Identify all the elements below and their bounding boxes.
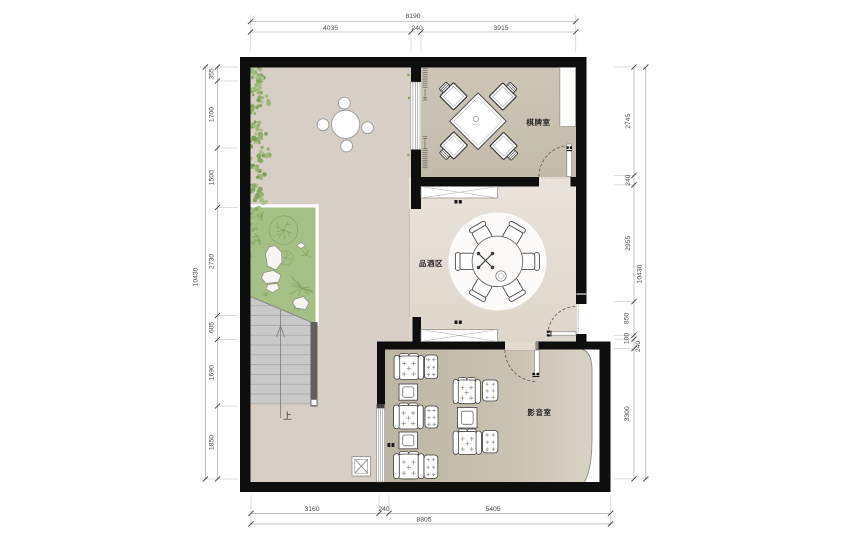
svg-text:3915: 3915: [493, 25, 508, 32]
svg-text:2730: 2730: [209, 254, 216, 269]
svg-text:1700: 1700: [209, 107, 216, 122]
svg-text:2745: 2745: [625, 113, 632, 128]
svg-text:4035: 4035: [323, 25, 338, 32]
svg-text:240: 240: [625, 174, 632, 186]
svg-text:8805: 8805: [416, 517, 431, 524]
svg-text:10430: 10430: [193, 267, 200, 286]
svg-text:355: 355: [209, 68, 216, 80]
svg-text:240: 240: [635, 341, 642, 353]
svg-text:棋牌室: 棋牌室: [526, 117, 550, 127]
svg-text:605: 605: [209, 322, 216, 334]
svg-text:240: 240: [411, 25, 423, 32]
svg-text:100: 100: [624, 333, 631, 345]
svg-text:3300: 3300: [624, 406, 631, 421]
svg-text:2955: 2955: [625, 236, 632, 251]
svg-text:10430: 10430: [637, 264, 644, 283]
svg-text:品酒区: 品酒区: [419, 258, 443, 268]
svg-text:上: 上: [283, 411, 292, 421]
svg-text:1850: 1850: [209, 435, 216, 450]
svg-text:1500: 1500: [209, 170, 216, 185]
svg-text:影音室: 影音室: [527, 407, 551, 417]
svg-text:240: 240: [378, 506, 390, 513]
svg-text:850: 850: [624, 313, 631, 325]
svg-text:8190: 8190: [405, 13, 420, 20]
svg-text:5405: 5405: [485, 506, 500, 513]
svg-text:1690: 1690: [209, 365, 216, 380]
svg-text:3160: 3160: [304, 506, 319, 513]
